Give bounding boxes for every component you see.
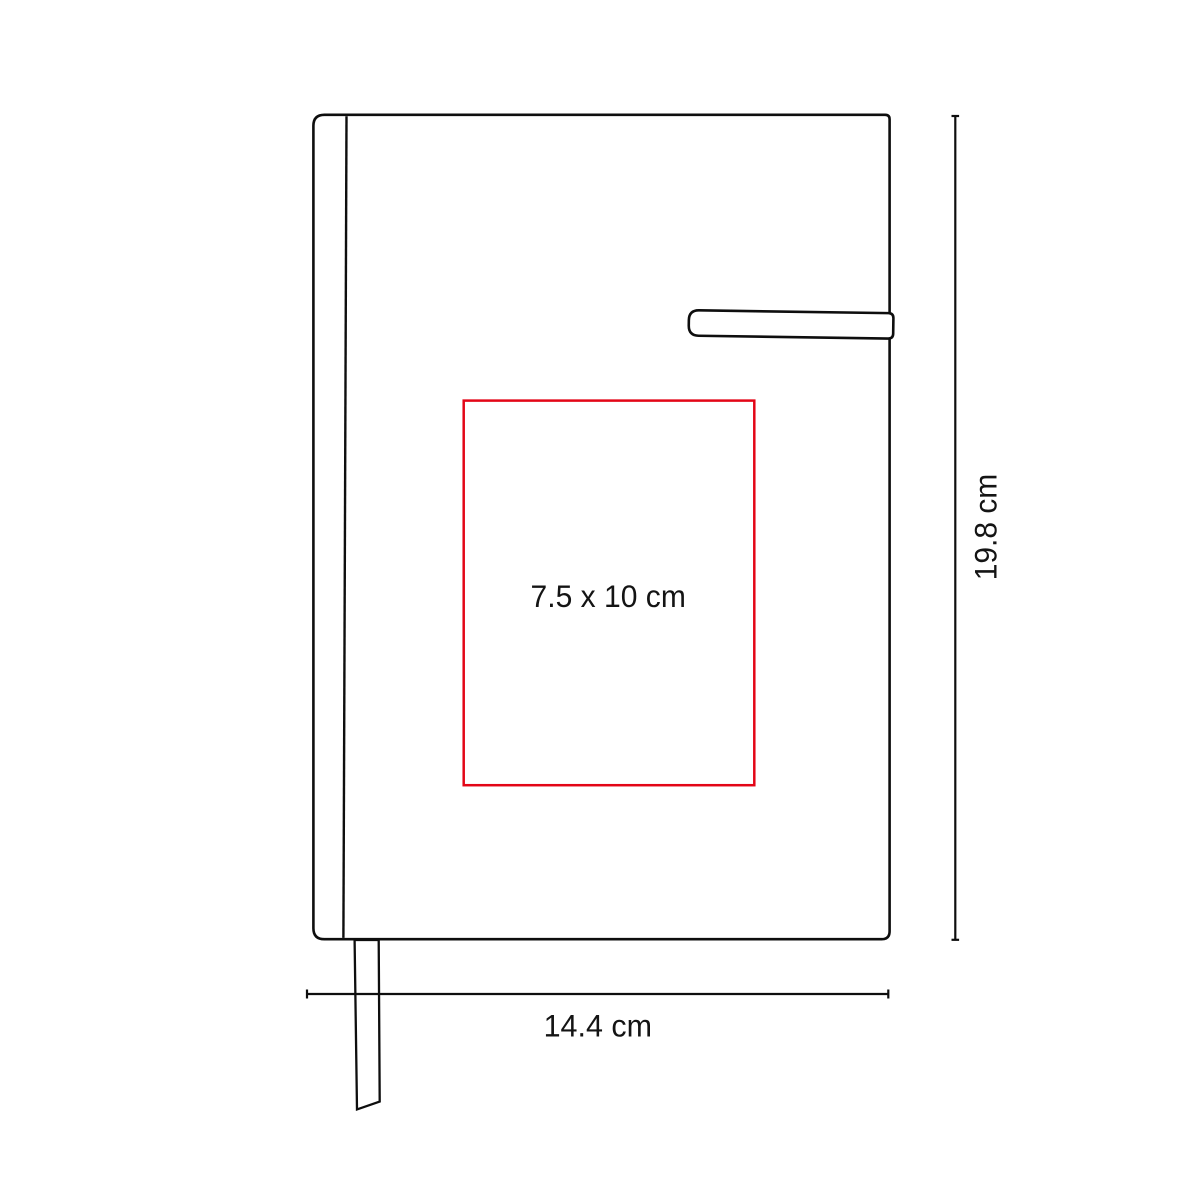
svg-text:19.8 cm: 19.8 cm [968,474,1004,581]
svg-text:14.4 cm: 14.4 cm [544,1007,652,1043]
svg-text:7.5 x 10 cm: 7.5 x 10 cm [531,578,686,614]
